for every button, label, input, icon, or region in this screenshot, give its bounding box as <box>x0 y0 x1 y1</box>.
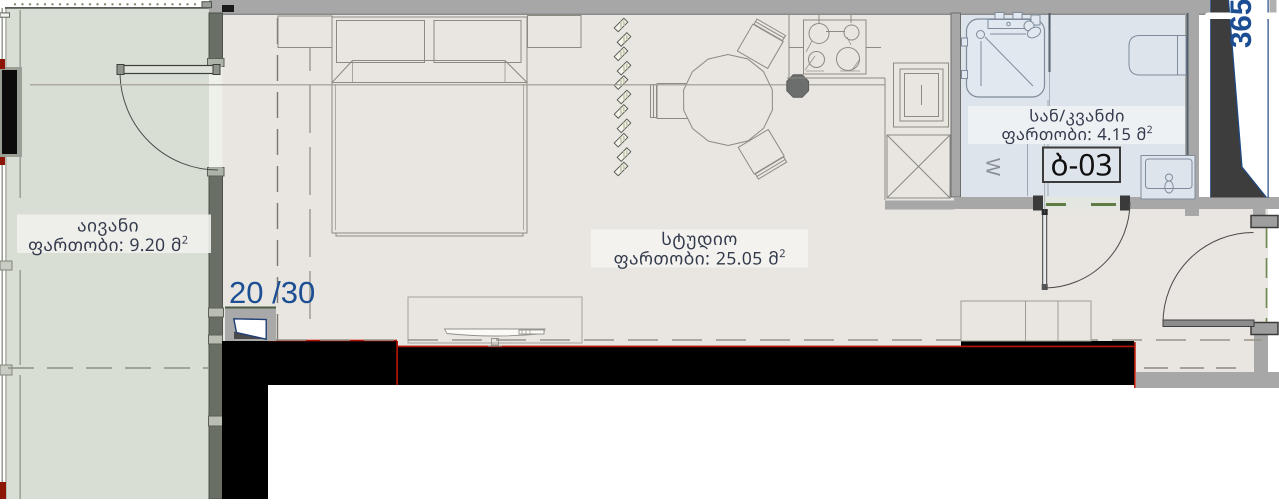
svg-text:365: 365 <box>1225 0 1258 48</box>
svg-text:W: W <box>982 158 1003 176</box>
svg-text:20 /30: 20 /30 <box>229 275 315 310</box>
